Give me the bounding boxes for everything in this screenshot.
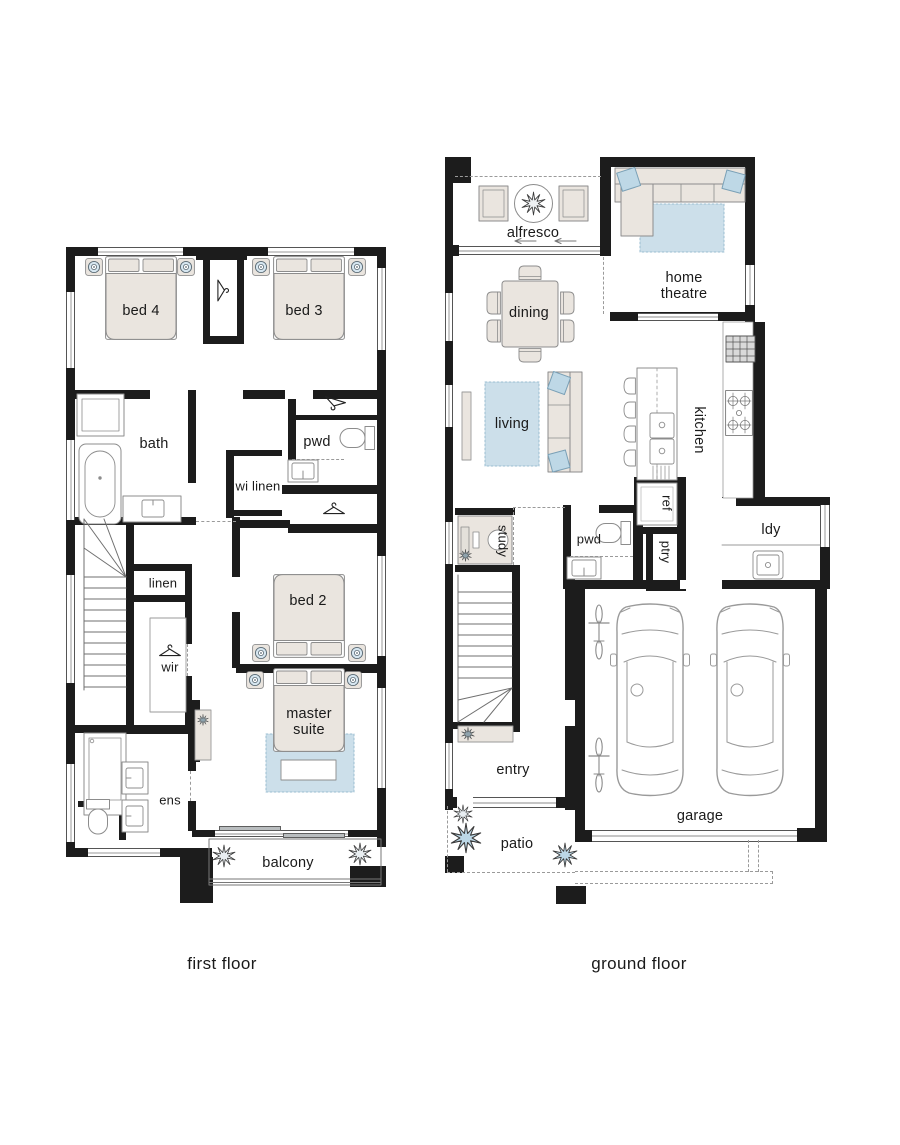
room-label-study: study [496, 525, 511, 557]
room-label-bed3: bed 3 [285, 303, 322, 319]
room-label-bath: bath [139, 436, 168, 452]
room-label-entry: entry [496, 762, 529, 778]
room-label-balcony: balcony [262, 855, 313, 871]
room-label-alfresco: alfresco [507, 225, 559, 241]
floorplan-canvas: bed 4 bed 3 bath pwd wi linen linen wir … [0, 0, 900, 1145]
room-label-ref: ref [660, 495, 675, 511]
room-label-linen: linen [149, 576, 177, 591]
room-label-bed2: bed 2 [289, 593, 326, 609]
room-label-master-suite: master suite [277, 706, 341, 738]
room-label-pwd-first: pwd [303, 434, 330, 450]
room-label-ptry: ptry [659, 541, 674, 563]
room-label-wir: wir [161, 660, 178, 675]
room-label-ldy: ldy [761, 522, 780, 538]
labels-layer: bed 4 bed 3 bath pwd wi linen linen wir … [0, 0, 900, 1145]
room-label-ens: ens [159, 793, 181, 808]
room-label-wi-linen: wi linen [235, 480, 281, 495]
room-label-patio: patio [501, 836, 533, 852]
floor-caption-first: first floor [187, 954, 257, 974]
floor-caption-ground: ground floor [591, 954, 687, 974]
room-label-dining: dining [509, 305, 549, 321]
room-label-kitchen: kitchen [691, 406, 707, 453]
room-label-living: living [495, 416, 529, 432]
room-label-garage: garage [677, 808, 723, 824]
room-label-pwd-ground: pwd [577, 532, 601, 547]
room-label-home-theatre: home theatre [644, 270, 724, 302]
room-label-bed4: bed 4 [122, 303, 159, 319]
